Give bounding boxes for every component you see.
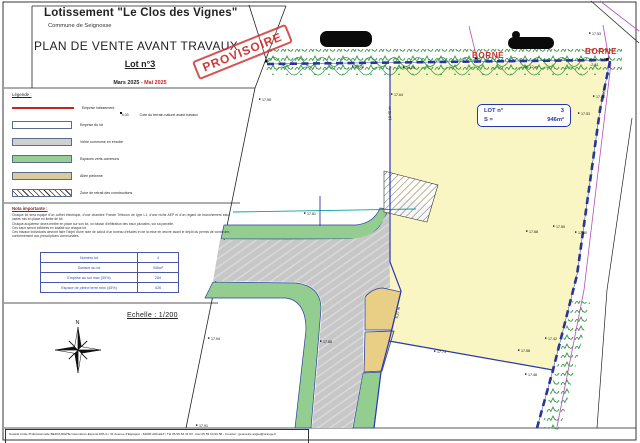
elevation-point-marker [434, 350, 435, 351]
notes-lines: Chaque lot sera équipé d'un coffret élec… [12, 213, 230, 239]
page-title: Lotissement "Le Clos des Vignes" [44, 7, 237, 19]
elevation-point-marker [352, 65, 353, 66]
legend-panel: Légende : Emprise lotissementEmprise du … [12, 92, 307, 206]
elevation-point-label: 17.53 [581, 112, 590, 116]
elevation-point-marker [589, 32, 590, 33]
legend-label: Allée piétonne [80, 174, 103, 178]
legend-row: Voirie commune en enrobé [12, 137, 307, 146]
table-cell-label: Emprise au sol max (30%) [41, 273, 138, 283]
legend-row: Allée piétonne [12, 172, 307, 181]
date-start: Mars 2025 [113, 80, 139, 86]
notes-heading: Nota importante : [12, 206, 230, 211]
legend-heading: Légende : [12, 92, 307, 97]
table-row: Numéro lot4 [41, 253, 179, 263]
north-rose: N [55, 320, 101, 373]
commune-subtitle: Commune de Seignosse [48, 23, 111, 29]
elevation-point-label: 17.81 [307, 212, 316, 216]
elevation-point-marker [208, 337, 209, 338]
legend-label: Zone de retrait des constructions [80, 191, 132, 195]
borne-label: BORNE [472, 51, 504, 60]
elevation-point-marker [593, 95, 594, 96]
elevation-point-label: 17.91 [199, 424, 208, 428]
legend-row: Zone de retrait des constructions [12, 189, 307, 198]
elevation-point-label: 17.94 [211, 337, 220, 341]
notes-panel: Nota importante : Chaque lot sera équipé… [12, 206, 230, 239]
measurement-label: 16.12 m [524, 65, 538, 69]
elevation-point-label: 17.48 [528, 373, 537, 377]
footer-bar: Société Civile Professionnelle BEDOURGHE… [5, 429, 309, 443]
legend-label: Voirie commune en enrobé [80, 140, 123, 144]
legend-label: Emprise lotissement [82, 106, 114, 110]
elevation-point-marker [403, 66, 404, 67]
legend-label: Espaces verts communs [80, 157, 119, 161]
measurement-label: -13.45 m [388, 106, 393, 121]
note-line: Ces travaux individuels devront faire l'… [12, 230, 230, 239]
lot-info-row: LOT n° 3 [484, 107, 564, 116]
legend-swatch-hatch [12, 189, 72, 197]
table-row: Surface du lot946m² [41, 263, 179, 273]
elevation-point-label: 17.64 [394, 93, 403, 97]
elevation-point-marker [553, 225, 554, 226]
redactions [320, 31, 554, 49]
footer-text: Société Civile Professionnelle BEDOURGHE… [9, 432, 276, 436]
compass-points [55, 327, 101, 373]
elevation-point-label: 17.42 [596, 95, 605, 99]
elevation-point-label: 17.68 [529, 230, 538, 234]
elevation-point-label: 17.58 [521, 349, 530, 353]
elevation-point-label: 17.50 [556, 225, 565, 229]
plan-sheet: N BORNEBORNE16.12 m-2.81-7.60 m-13.45 m6… [0, 0, 640, 443]
table-cell-value: 4 [138, 253, 179, 263]
black-corner-line [591, 1, 639, 43]
north-label: N [76, 320, 80, 326]
elevation-point-label: 17.42 [548, 337, 557, 341]
legend-swatch-tan [12, 172, 72, 180]
legend-row: Emprise du lot [12, 120, 307, 129]
elevation-point-label: 14.29 [406, 66, 415, 70]
legend-swatch-green [12, 155, 72, 163]
lot-number-label: LOT n° [484, 107, 503, 116]
lot-info-row: S = 946m² [484, 116, 564, 125]
date-end: - Mai 2025 [141, 80, 167, 86]
table-cell-value: 426 [138, 283, 179, 293]
green-strip-southwest [205, 282, 321, 428]
legend-row: Emprise lotissement [12, 103, 307, 112]
lot-number-heading: Lot n°3 [90, 59, 190, 69]
lot-number-value: 3 [561, 107, 564, 116]
borne-marker [606, 58, 609, 61]
elevation-point-marker [525, 373, 526, 374]
elevation-point-marker [320, 340, 321, 341]
lot-info-box: LOT n° 3 S = 946m² [477, 104, 571, 127]
cote-label: Cote du terrain naturel avant travaux [140, 113, 198, 117]
elevation-point-marker [575, 231, 576, 232]
legend-swatch-gray [12, 138, 72, 146]
table-cell-label: Numéro lot [41, 253, 138, 263]
borne-label: BORNE [585, 47, 617, 56]
lot-surface-value: 946m² [547, 116, 564, 125]
table-cell-label: Espace de pleine terre mini (45%) [41, 283, 138, 293]
black-east-line [597, 118, 632, 428]
table-cell-value: 946m² [138, 263, 179, 273]
borne-marker [265, 60, 268, 63]
lot-info-table: Numéro lot4Surface du lot946m²Emprise au… [40, 252, 179, 293]
legend-row: Espaces verts communs [12, 155, 307, 164]
magenta-corner-line [600, 1, 639, 31]
elevation-point-marker [196, 424, 197, 425]
elevation-point-marker [545, 337, 546, 338]
cote-legend-item: 4.03 Cote du terrain naturel avant trava… [120, 112, 198, 117]
lot-surface-label: S = [484, 116, 493, 125]
cote-value: 4.03 [122, 113, 129, 117]
redaction-blob [512, 31, 520, 39]
elevation-point-marker [526, 230, 527, 231]
redaction-blob [320, 31, 372, 47]
legend-label: Emprise du lot [80, 123, 103, 127]
date-range: Mars 2025 - Mai 2025 [90, 80, 190, 86]
elevation-point-marker [304, 212, 305, 213]
table-cell-label: Surface du lot [41, 263, 138, 273]
elevation-point-label: 17.73 [437, 350, 446, 354]
measurement-label: -2.81 [590, 63, 599, 67]
table-cell-value: 284 [138, 273, 179, 283]
elevation-point-label: 17.60 [578, 231, 587, 235]
elevation-point-marker [578, 112, 579, 113]
table-row: Emprise au sol max (30%)284 [41, 273, 179, 283]
scale-label: Echelle : 1/200 [127, 312, 178, 319]
legend-swatch-white [12, 121, 72, 129]
legend-swatch-line-red [12, 107, 74, 109]
elevation-point-marker [391, 93, 392, 94]
lot-table-body: Numéro lot4Surface du lot946m²Emprise au… [41, 253, 179, 293]
elevation-point-marker [518, 349, 519, 350]
plan-title: PLAN DE VENTE AVANT TRAVAUX [34, 39, 238, 53]
legend-items: Emprise lotissementEmprise du lotVoirie … [12, 103, 307, 198]
note-line: Chaque lot sera équipé d'un coffret élec… [12, 213, 230, 222]
elevation-point-label: 17.88 [323, 340, 332, 344]
elevation-point-label: 17.26 [355, 65, 364, 69]
elevation-point-label: 17.53 [592, 32, 601, 36]
table-row: Espace de pleine terre mini (45%)426 [41, 283, 179, 293]
